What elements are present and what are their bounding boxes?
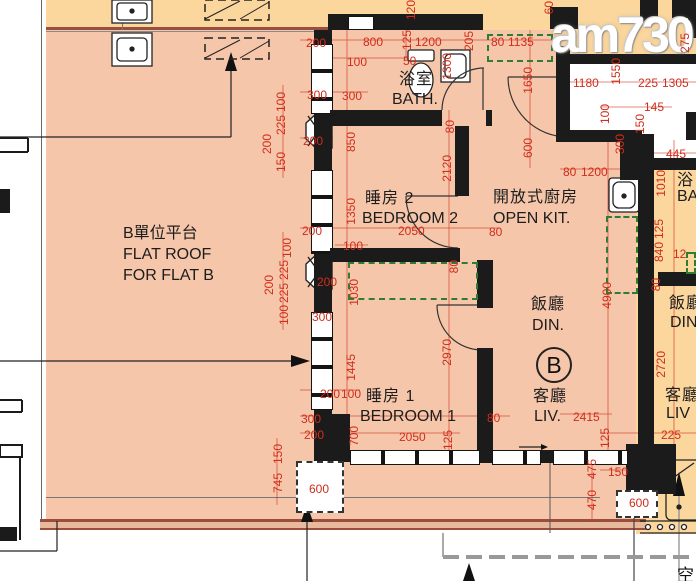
dimension-label: 225: [275, 115, 287, 135]
dimension-label: 200: [302, 225, 322, 237]
dimension-label: 100: [278, 305, 290, 325]
dimension-label: 125: [401, 30, 413, 50]
dimension-label: 1305: [662, 77, 689, 89]
roof-ac-dashed-boxes: [205, 0, 269, 59]
dimension-label: 1550: [610, 58, 622, 85]
window-left-1: [311, 44, 333, 114]
wall-adjacent-mid: [658, 272, 696, 286]
dimension-label: 100: [341, 388, 361, 400]
floor-plan: 浴室 BATH. 睡房 2 BEDROOM 2 開放式廚房 OPEN KIT. …: [0, 0, 696, 581]
unit-b-badge: B: [536, 347, 572, 383]
window-bedroom1: [350, 450, 480, 465]
dimension-label: 200: [306, 37, 326, 49]
dimension-label: 100: [343, 240, 363, 252]
dimension-label: 80: [489, 226, 502, 238]
dimension-label: 80: [650, 278, 662, 291]
dimension-label: 600: [522, 138, 534, 158]
dimension-label: 80: [444, 120, 456, 133]
dimension-label: 100: [281, 238, 293, 258]
dimension-label: 225: [278, 260, 290, 280]
dimension-label: 1350: [345, 198, 357, 225]
dimension-label: 80: [563, 166, 576, 178]
dimension-label: 1650: [522, 67, 534, 94]
dimension-label: 200: [320, 388, 340, 400]
am730-watermark: am730: [551, 10, 692, 60]
dimension-label: 600: [309, 483, 329, 495]
dimension-label: 1135: [508, 36, 534, 48]
dimension-label: 1010: [655, 170, 667, 197]
dimension-label: 840: [653, 242, 665, 262]
dimension-label: 12: [673, 248, 686, 260]
room-kitchen-zh: 開放式廚房: [493, 189, 578, 207]
dimension-label: 300: [342, 90, 362, 102]
flat-roof-label: B單位平台 FLAT ROOF FOR FLAT B: [123, 223, 214, 286]
dimension-label: 100: [275, 92, 287, 112]
dimension-label: 275: [679, 33, 691, 53]
wall-party: [638, 134, 654, 452]
dimension-label: 120: [405, 0, 417, 20]
room-living-zh: 客廳: [533, 388, 567, 406]
dimension-label: 800: [363, 36, 383, 48]
dimension-label: 1445: [345, 354, 357, 381]
adjacent-dining-zh: 飯廳: [669, 295, 696, 313]
dimension-label: 4900: [601, 282, 613, 309]
dimension-label: 300: [307, 89, 327, 101]
dimension-label: 1200: [415, 36, 442, 48]
dimension-label: 445: [666, 148, 686, 160]
flat-roof-label-en1: FLAT ROOF: [123, 244, 214, 265]
wall-bath-south-stub: [486, 110, 492, 126]
dimension-label: 2050: [399, 431, 426, 443]
flat-roof-label-zh: B單位平台: [123, 223, 214, 244]
dimension-label: 300: [312, 311, 332, 323]
dimension-label: 80: [448, 260, 460, 273]
dimension-label: 745: [272, 473, 284, 493]
dimension-label: 700: [348, 426, 360, 446]
dimension-label: 200: [303, 135, 323, 147]
dimension-label: 600: [629, 497, 649, 509]
adjacent-cabinet-dashed: [686, 252, 696, 274]
room-kitchen-en: OPEN KIT.: [493, 210, 570, 228]
dimension-label: 200: [304, 429, 324, 441]
balcony-railing: [640, 521, 696, 533]
dimension-label: 145: [644, 101, 664, 113]
neighbour-building-edge: [0, 138, 28, 540]
adjacent-living-zh: 客廳: [665, 387, 696, 405]
wall-tr-4: [686, 112, 696, 140]
dimension-label: 150: [275, 152, 287, 172]
room-bath-en: BATH.: [392, 91, 438, 109]
dimension-label: 205: [463, 31, 475, 51]
wall-corner-mass: [626, 444, 676, 494]
dimension-label: 125: [599, 428, 611, 448]
dimension-label: 125: [442, 430, 454, 450]
roof-ac-diagonals: [205, 1, 269, 58]
window-top: [348, 16, 374, 30]
dimension-label: 1300: [441, 53, 453, 80]
dimension-label: 470: [586, 490, 598, 510]
dimension-label: 50: [403, 55, 416, 67]
dimension-label: 225: [278, 283, 290, 303]
dimension-label: 1180: [573, 77, 599, 89]
dimension-label: 475: [586, 459, 598, 479]
dimension-label: 100: [599, 104, 611, 124]
room-living-en: LIV.: [534, 408, 561, 426]
dimension-label: 125: [653, 219, 665, 239]
dimension-label: 150: [608, 466, 628, 478]
roof-drain-sinks: [112, 0, 152, 66]
window-living-1: [492, 450, 541, 465]
dimension-label: 2970: [441, 339, 453, 366]
kitchen-sink: [609, 178, 639, 212]
dimension-label: 2415: [573, 411, 600, 423]
window-left-2: [311, 170, 333, 254]
adjacent-bath-en: BA: [677, 188, 696, 206]
dimension-label: 200: [317, 276, 337, 288]
flat-roof-label-en2: FOR FLAT B: [123, 265, 214, 286]
dimension-label: 150: [272, 444, 284, 464]
dimension-label: 80: [491, 36, 504, 48]
wall-bedroom1-east-b: [477, 348, 493, 463]
adjacent-dining-en: DIN: [670, 314, 696, 332]
wall-bedroom2-east: [455, 126, 469, 196]
dimension-label: 300: [301, 413, 321, 425]
adjacent-living-en: LIV: [666, 405, 690, 423]
room-dining-zh: 飯廳: [531, 296, 565, 314]
dimension-label: 300: [614, 134, 626, 154]
dimension-label: 2720: [655, 351, 667, 378]
room-bedroom1-en: BEDROOM 1: [360, 408, 456, 426]
dimension-label: 60: [543, 1, 555, 14]
room-bath-zh: 浴室: [399, 71, 433, 89]
dimension-label: 2050: [398, 225, 425, 237]
wall-bath-south: [330, 110, 442, 126]
dimension-label: 850: [345, 132, 357, 152]
room-bedroom2-zh: 睡房 2: [365, 190, 414, 208]
dimension-label: 225: [661, 429, 681, 441]
wall-bedroom1-east-a: [477, 260, 493, 308]
dimension-label: 80: [487, 412, 500, 424]
corner-label: 空: [677, 561, 694, 581]
dimension-label: 225: [638, 77, 658, 89]
dimension-label: 2120: [441, 155, 453, 182]
dimension-label: 150: [634, 114, 646, 134]
wall-living-pier: [539, 450, 553, 463]
room-dining-en: DIN.: [532, 317, 564, 335]
dimension-label: 100: [347, 56, 367, 68]
dimension-label: 200: [263, 275, 275, 295]
dimension-label: 200: [261, 134, 273, 154]
dimension-label: 1030: [348, 279, 360, 306]
room-bedroom1-zh: 睡房 1: [366, 388, 415, 406]
dimension-label: 1200: [581, 166, 608, 178]
